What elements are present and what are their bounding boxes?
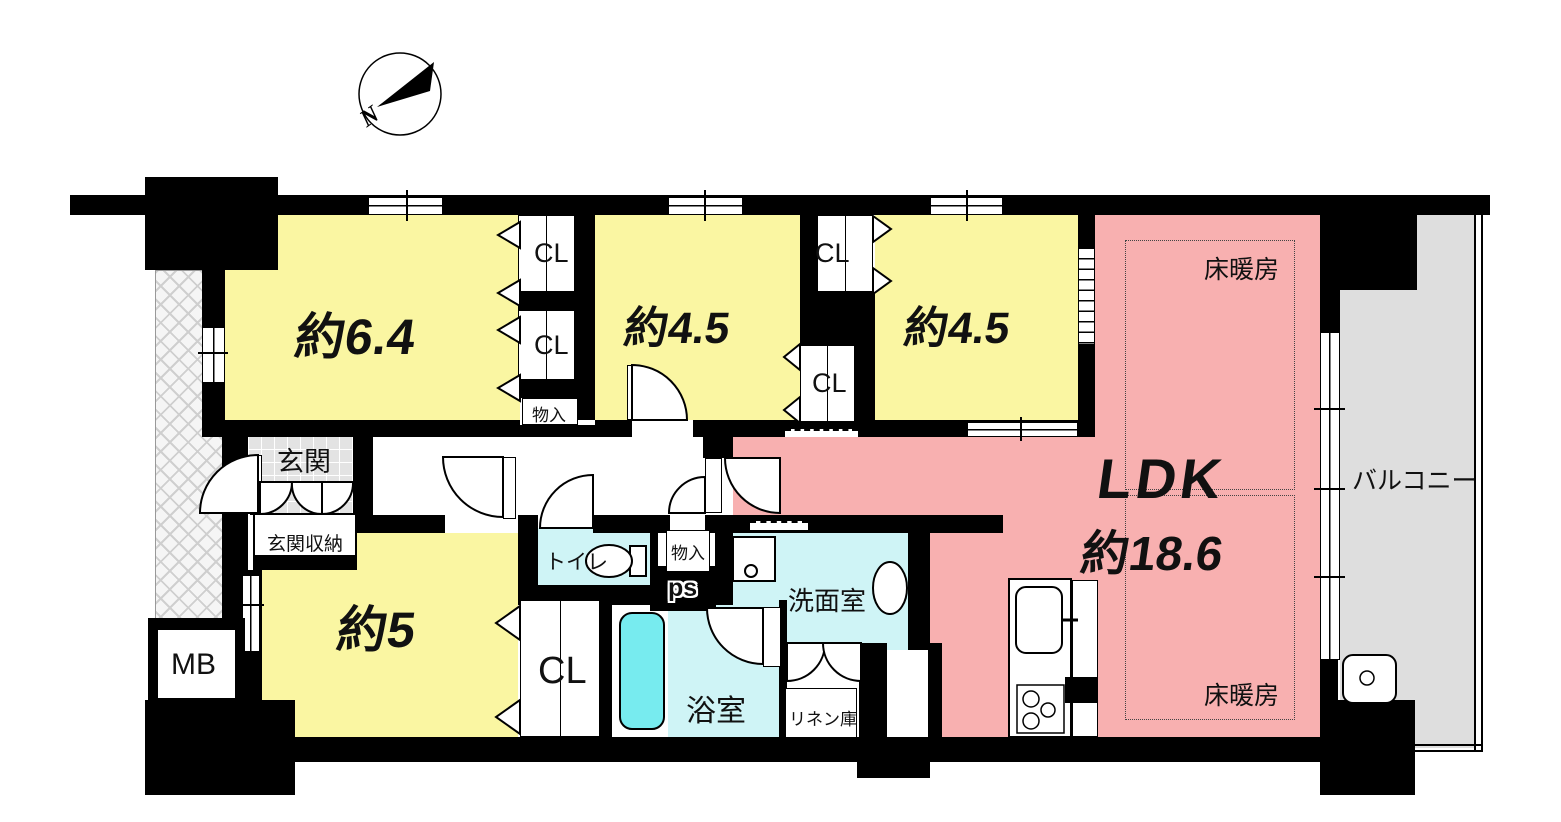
storage-label: 物入 — [671, 539, 705, 564]
kitchen-wall-stub — [1065, 677, 1098, 703]
meter-box-label: MB — [171, 648, 216, 682]
wall-block-bottom-right — [1338, 700, 1415, 795]
bathtub — [620, 613, 664, 729]
room-label-4-5-left: 約4.5 — [621, 292, 735, 356]
bedroom5-door-swing — [443, 457, 503, 517]
balcony-railing — [1481, 215, 1483, 752]
wall-block-bottom-left — [145, 700, 295, 795]
window-tick — [1314, 488, 1345, 490]
compass-circle — [359, 53, 441, 135]
window-balcony-sliding — [1320, 332, 1340, 660]
balcony-label: バルコニー — [1352, 461, 1477, 497]
compass-needle — [377, 62, 434, 107]
wall — [70, 195, 1490, 215]
wall — [715, 533, 733, 605]
closet-label: CL — [534, 238, 569, 269]
window-tick — [966, 190, 968, 221]
wall — [600, 600, 612, 740]
window-tick — [704, 190, 706, 221]
wall — [908, 533, 930, 650]
wall — [225, 420, 520, 437]
wall — [863, 515, 1003, 533]
wall — [518, 292, 575, 310]
pipe-space-label: ps — [668, 574, 697, 603]
wall — [857, 762, 930, 778]
floor-plan: N 約6.4 約4.5 約4.5 約5 LDK 約18.6 床暖房 床暖房 バル… — [0, 0, 1561, 822]
wall — [575, 215, 595, 420]
toilet-label: トイレ — [545, 546, 608, 576]
bathroom-label: 浴室 — [686, 686, 746, 730]
window-tick — [406, 190, 408, 221]
room-label-6-4: 約6.4 — [291, 297, 421, 369]
window-tick — [237, 604, 264, 606]
closet-label: CL — [812, 368, 847, 399]
window-tick — [1314, 408, 1345, 410]
wall-hall-stub — [703, 437, 733, 458]
closet-label: CL — [815, 238, 850, 269]
wall-balcony-jog — [1320, 215, 1417, 290]
ldk-label: LDK — [1093, 446, 1229, 511]
wall — [855, 292, 875, 437]
wall — [928, 643, 942, 740]
closet-label-large: CL — [538, 650, 587, 693]
window-tick — [1020, 417, 1022, 441]
wall — [859, 643, 887, 740]
entrance-label: 玄関 — [277, 440, 331, 479]
storage-door-swing — [669, 477, 705, 513]
closet-label: CL — [534, 330, 569, 361]
sliding-door-dashed — [750, 521, 808, 530]
ldk-size-label: 約18.6 — [1077, 514, 1228, 584]
door-leaf — [503, 457, 516, 519]
door-leaf — [627, 365, 636, 420]
balcony-floor-upper — [1417, 215, 1475, 292]
storage-label: 物入 — [532, 401, 566, 426]
wall — [1320, 660, 1338, 795]
balcony-railing — [1340, 750, 1482, 752]
toilet-door-swing — [540, 475, 593, 528]
wall — [518, 380, 575, 398]
entrance-storage-label: 玄関収納 — [267, 529, 343, 556]
linen-closet-label: リネン庫 — [789, 705, 857, 730]
wall — [1320, 290, 1340, 332]
door-leaf — [705, 458, 722, 513]
wall — [353, 437, 373, 515]
kitchen-counter — [1008, 578, 1072, 738]
window-shutter — [1078, 248, 1095, 345]
wall — [612, 585, 658, 605]
wall — [518, 533, 538, 605]
wall — [593, 515, 670, 533]
door-leaf — [763, 607, 781, 667]
ldk-floor-band — [733, 437, 1095, 515]
window — [967, 422, 1078, 437]
balcony-floor — [1340, 290, 1475, 748]
compass-north-label: N — [354, 100, 385, 133]
wall — [518, 425, 595, 437]
washroom-label: 洗面室 — [788, 581, 866, 618]
room-label-5: 約5 — [333, 590, 421, 662]
window-tick — [1314, 576, 1345, 578]
floor-heating-label-bottom: 床暖房 — [1204, 676, 1279, 712]
wall-bottom — [240, 737, 1340, 762]
front-door-leaf — [250, 455, 262, 515]
opening-dashed — [785, 429, 858, 437]
kitchen-bar — [1072, 580, 1098, 737]
window — [202, 327, 225, 383]
wall — [518, 515, 538, 533]
floor-heating-label-top: 床暖房 — [1204, 250, 1279, 286]
window-tick — [198, 352, 228, 354]
wall — [595, 420, 632, 437]
room-label-4-5-right: 約4.5 — [901, 292, 1015, 356]
wall — [357, 515, 445, 533]
balcony-railing — [1340, 744, 1482, 746]
wall — [202, 215, 225, 437]
wall — [650, 533, 658, 570]
